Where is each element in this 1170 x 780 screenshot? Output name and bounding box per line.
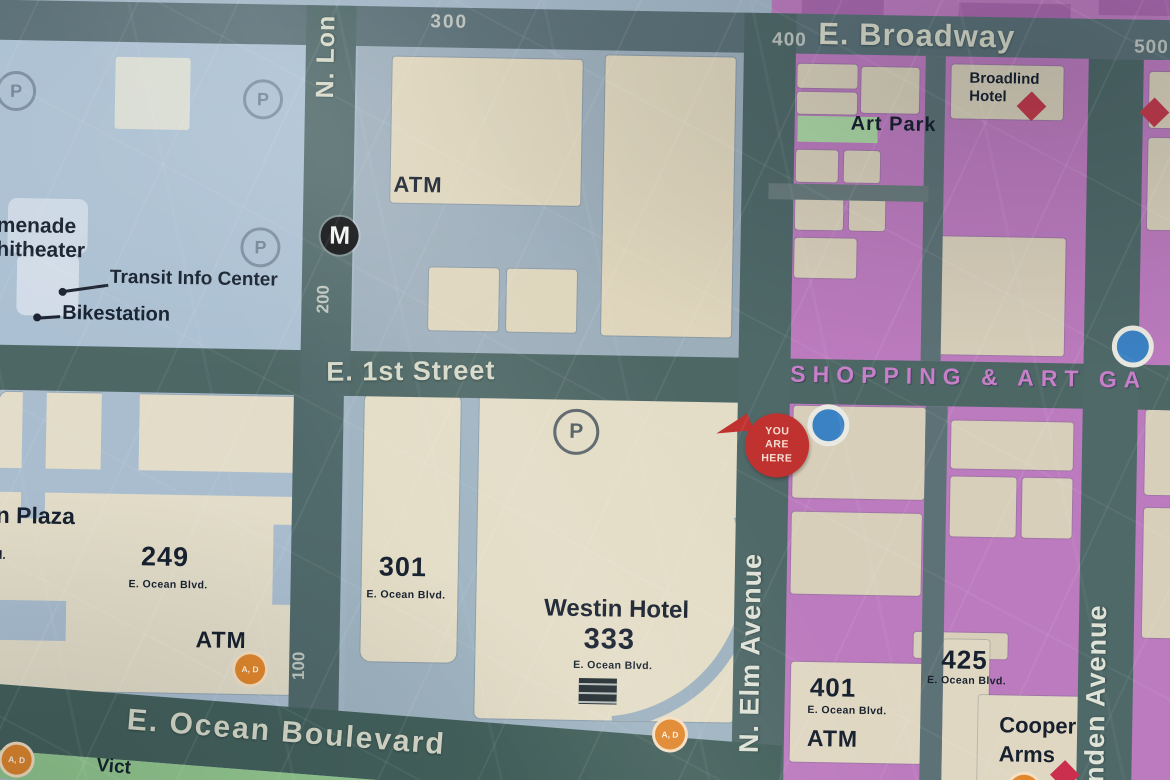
address-249: 249: [141, 542, 190, 571]
alley: [768, 183, 928, 202]
metro-station-icon: M: [320, 216, 359, 255]
you-are-here-line2: ARE: [765, 439, 789, 453]
building: [1142, 508, 1170, 640]
building: [1021, 478, 1072, 539]
block-number-300: 300: [430, 11, 468, 34]
transit-info-center-label: Transit Info Center: [110, 268, 278, 291]
building: [1144, 410, 1170, 497]
plaza-lane: [0, 600, 66, 641]
building: [844, 150, 881, 183]
street-n-elm-label: N. Elm Avenue: [733, 485, 789, 780]
you-are-here-line3: HERE: [761, 452, 792, 466]
building: [428, 267, 499, 331]
street-linden-label: Linden Avenue: [1077, 524, 1135, 780]
address-301-street: E. Ocean Blvd.: [366, 589, 445, 601]
address-401-street: E. Ocean Blvd.: [807, 705, 886, 717]
parking-letter: P: [569, 420, 583, 444]
building: [797, 64, 857, 89]
street-e-1st-label: E. 1st Street: [326, 355, 495, 387]
street-e-broadway-label: E. Broadway: [818, 16, 1016, 55]
street-long-beach-label: N. Lon: [311, 0, 359, 116]
building: [794, 238, 857, 279]
metro-letter: M: [329, 221, 350, 250]
photo-artifact: [579, 678, 617, 705]
building: [790, 512, 921, 596]
block-number-400: 400: [772, 29, 807, 52]
parking-letter: P: [10, 80, 22, 101]
address-401: 401: [810, 674, 857, 702]
block-number-100: 100: [289, 637, 316, 695]
street-fragment-label: d.: [0, 549, 6, 562]
bus-routes-label: A, D: [241, 664, 258, 674]
westin-hotel-label: Westin Hotel: [544, 595, 689, 623]
address-425-street: E. Ocean Blvd.: [927, 675, 1006, 687]
bus-routes-label: A, D: [8, 754, 26, 765]
building: [797, 92, 857, 115]
amphitheater-label: hitheater: [0, 239, 85, 263]
bus-routes-label: A, D: [661, 729, 678, 739]
you-are-here-line1: YOU: [765, 425, 789, 439]
atm-label: ATM: [393, 173, 442, 197]
building: [950, 476, 1017, 537]
building: [938, 236, 1066, 356]
parking-letter: P: [254, 237, 266, 258]
block-number-500: 500: [1134, 37, 1169, 60]
westin-curve: [474, 393, 740, 722]
parking-letter: P: [257, 89, 269, 110]
atm-label: ATM: [195, 627, 247, 652]
address-425: 425: [941, 646, 988, 674]
address-333: 333: [583, 624, 635, 655]
block-number-200: 200: [313, 268, 340, 330]
cooper-line1: Cooper: [999, 711, 1076, 741]
art-park-label: Art Park: [850, 114, 936, 136]
address-333-street: E. Ocean Blvd.: [573, 660, 652, 672]
plaza-lane: [21, 386, 47, 518]
building: [114, 57, 190, 130]
bikestation-label: Bikestation: [62, 303, 170, 326]
building: [601, 55, 736, 337]
promenade-label: menade: [0, 215, 76, 238]
plaza-label: n Plaza: [0, 503, 75, 529]
broadlind-line1: Broadlind: [969, 70, 1039, 89]
building: [1099, 0, 1170, 16]
building: [861, 67, 920, 114]
victory-park-label: Vict: [96, 756, 132, 779]
building-301: [360, 391, 461, 663]
building: [1147, 138, 1170, 232]
map-scene: Vict A, D E. Ocean Boulevard E. Broadway…: [0, 0, 1170, 780]
address-249-street: E. Ocean Blvd.: [128, 579, 207, 591]
address-301: 301: [379, 552, 428, 581]
plaza-lane: [101, 388, 140, 473]
atm-label: ATM: [807, 726, 859, 751]
building: [506, 269, 577, 333]
building: [951, 420, 1074, 470]
map-photo: Vict A, D E. Ocean Boulevard E. Broadway…: [0, 0, 1170, 780]
building: [796, 150, 839, 183]
